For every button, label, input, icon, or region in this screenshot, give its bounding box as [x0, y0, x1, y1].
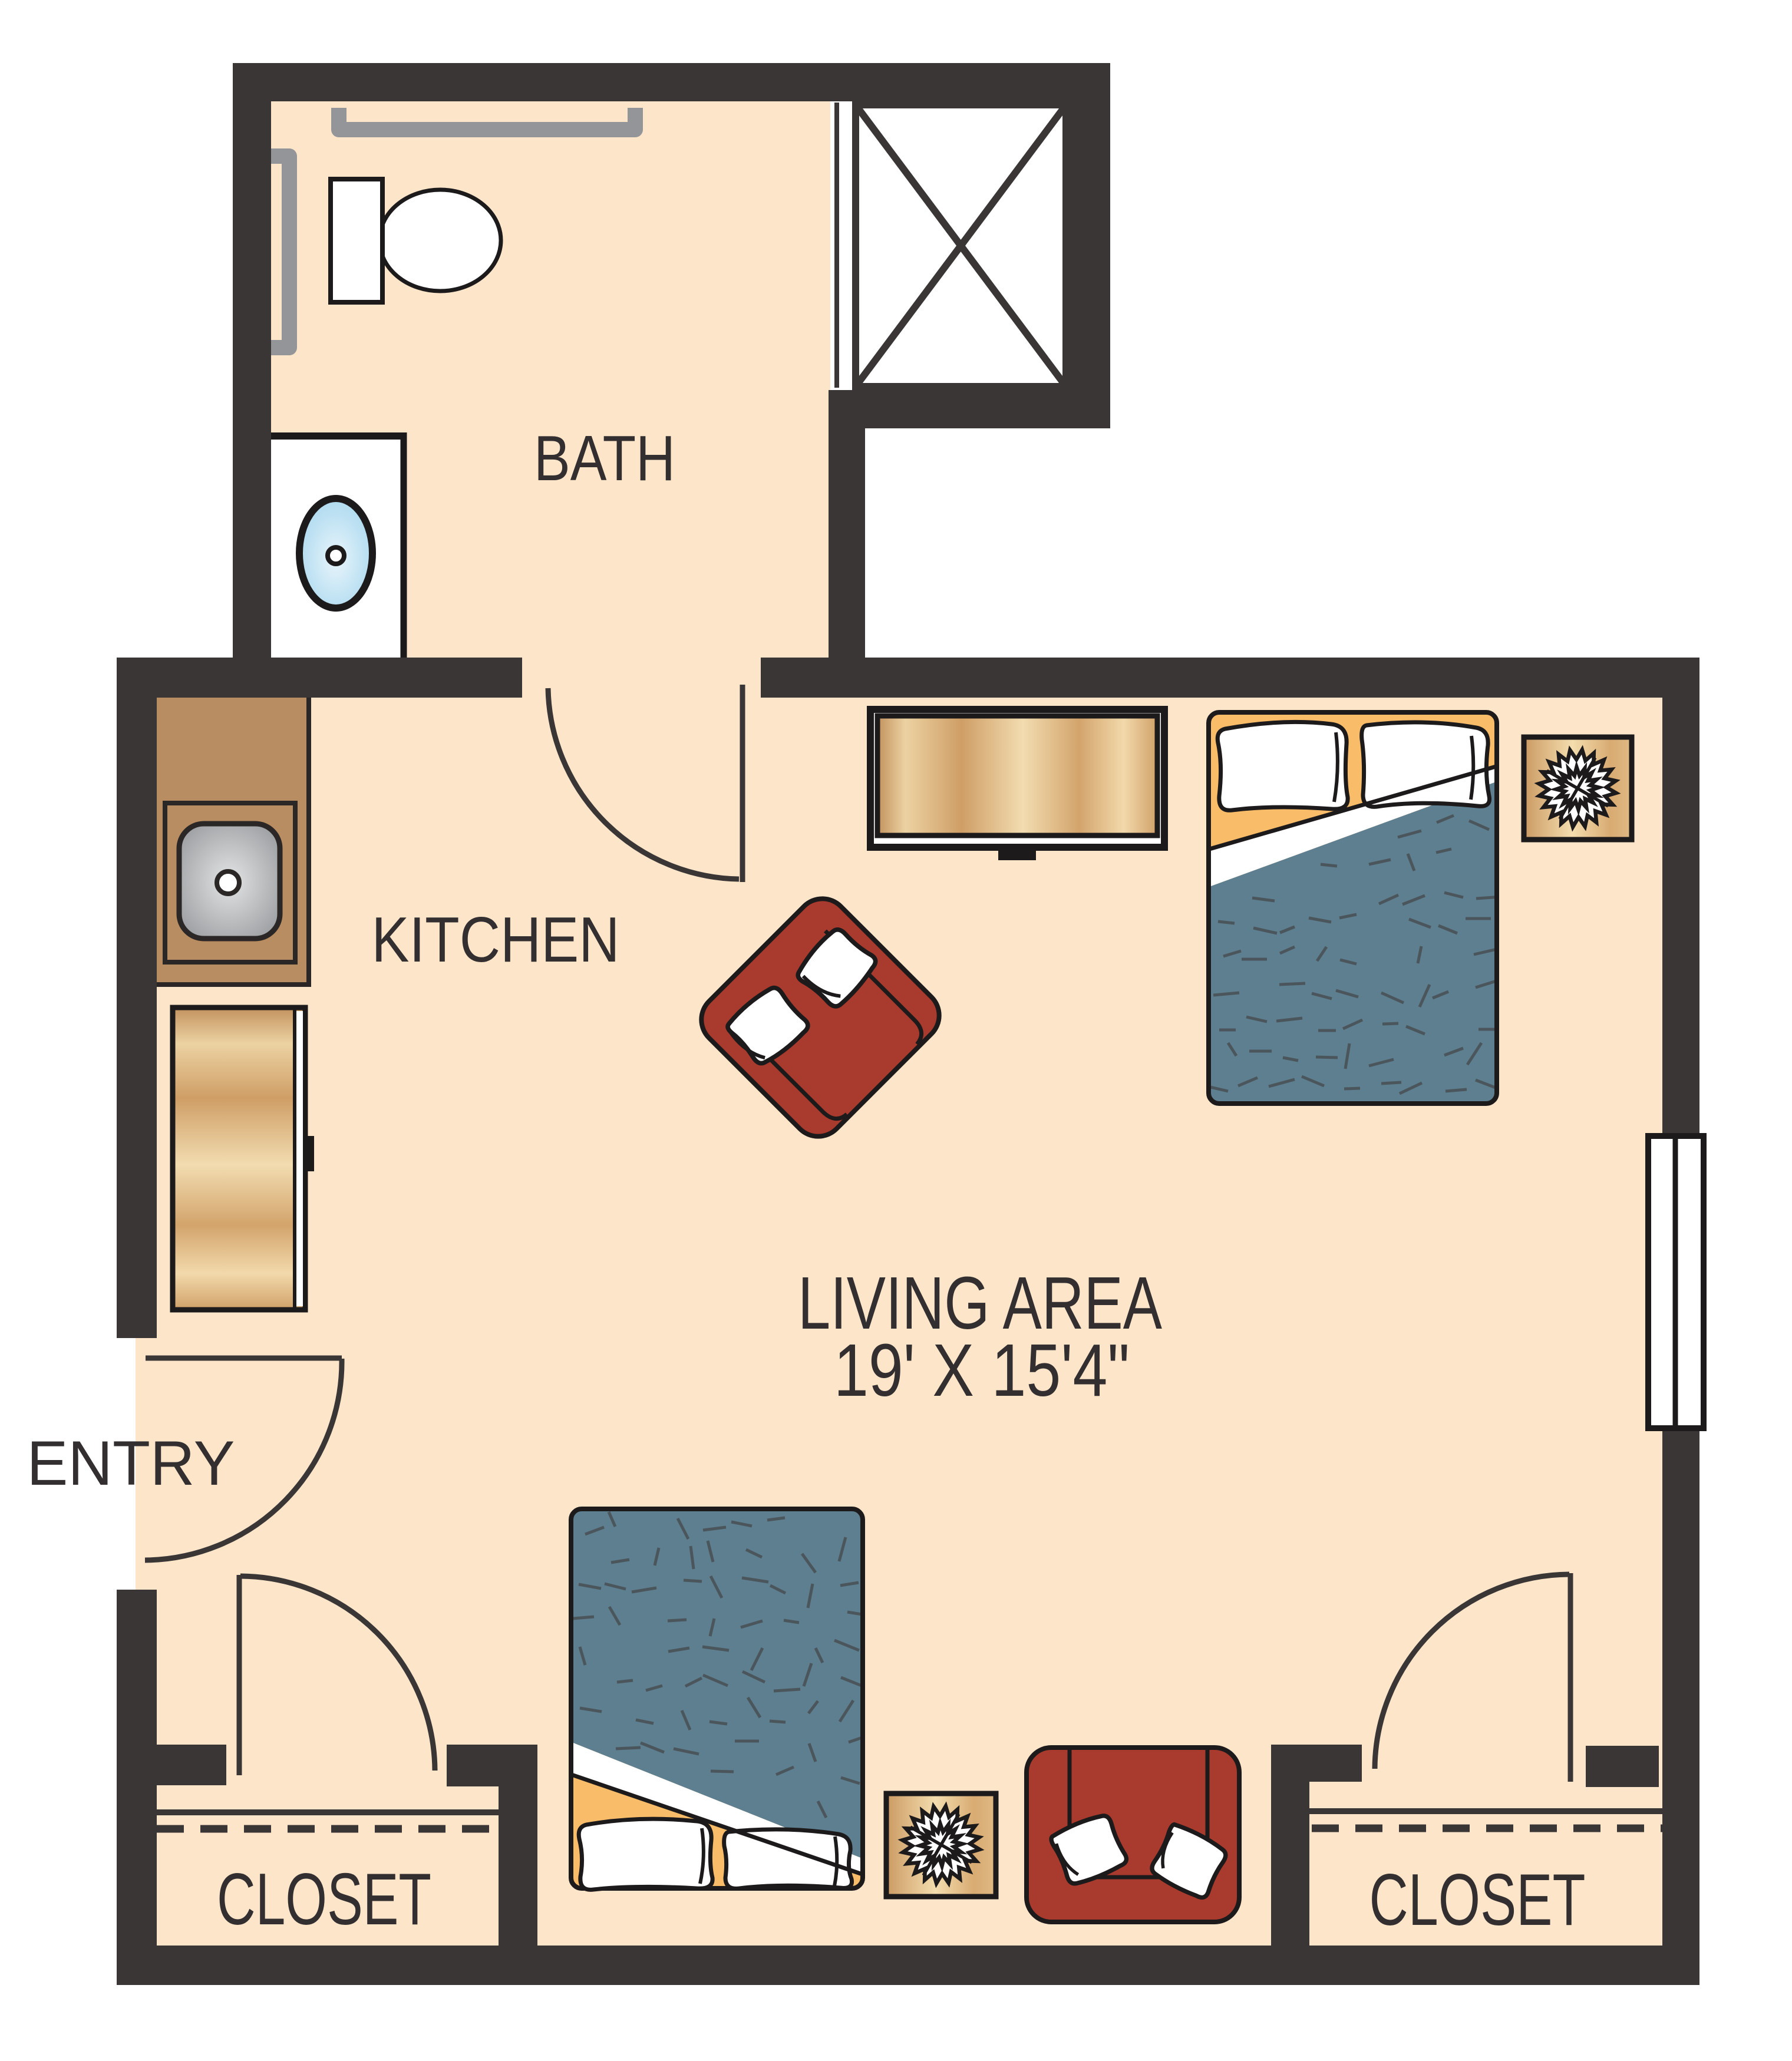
svg-text:19' X 15'4": 19' X 15'4"	[834, 1329, 1130, 1412]
svg-text:BATH: BATH	[534, 422, 675, 494]
svg-text:ENTRY: ENTRY	[27, 1428, 235, 1498]
svg-text:KITCHEN: KITCHEN	[372, 904, 620, 976]
svg-text:CLOSET: CLOSET	[1369, 1859, 1586, 1941]
svg-text:CLOSET: CLOSET	[217, 1859, 431, 1940]
